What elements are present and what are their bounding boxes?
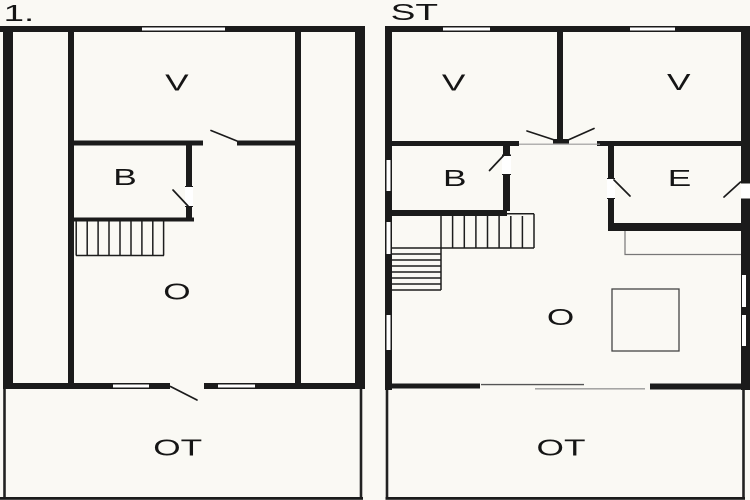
svg-text:V: V — [165, 70, 189, 96]
svg-text:V: V — [667, 70, 691, 96]
svg-text:E: E — [668, 166, 691, 192]
svg-text:ST: ST — [391, 0, 438, 25]
svg-text:OT: OT — [537, 435, 586, 461]
svg-text:B: B — [113, 164, 136, 190]
svg-text:O: O — [547, 304, 574, 330]
svg-text:OT: OT — [153, 435, 202, 461]
svg-text:O: O — [163, 279, 190, 305]
svg-text:1.: 1. — [4, 0, 35, 26]
svg-text:V: V — [442, 70, 466, 96]
svg-text:B: B — [443, 165, 466, 191]
